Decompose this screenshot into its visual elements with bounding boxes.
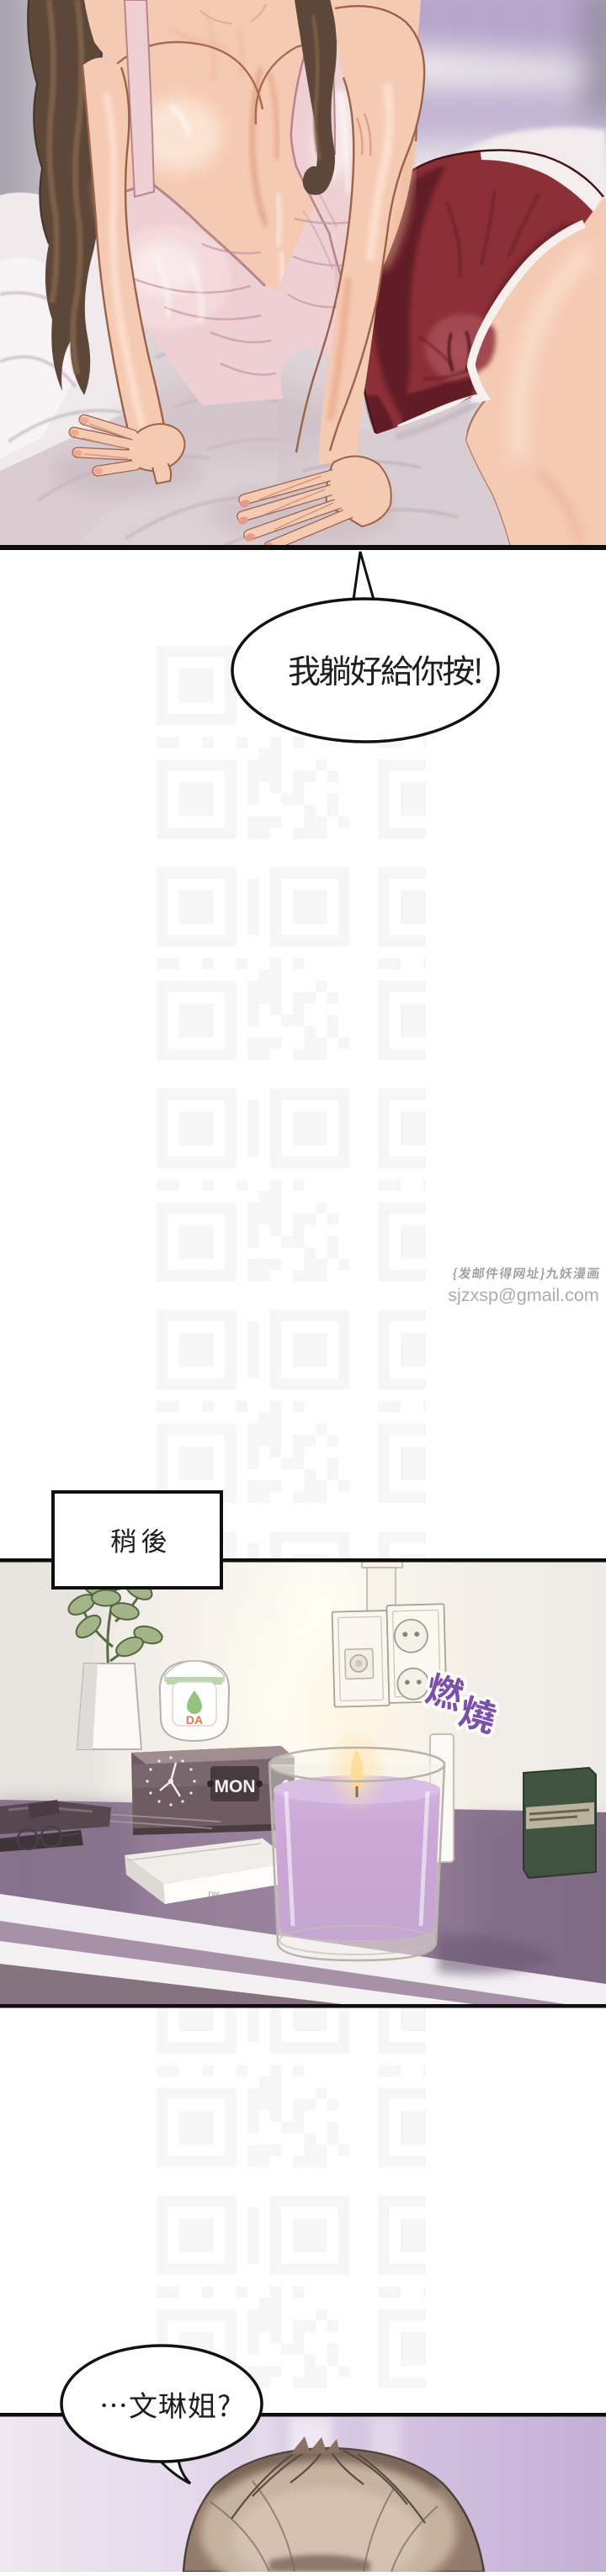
svg-text:DA: DA	[186, 1713, 203, 1727]
svg-text:Div: Div	[208, 1889, 221, 1899]
svg-text:MON: MON	[215, 1777, 256, 1796]
svg-text:sjzxsp@gmail.com: sjzxsp@gmail.com	[448, 1285, 599, 1305]
